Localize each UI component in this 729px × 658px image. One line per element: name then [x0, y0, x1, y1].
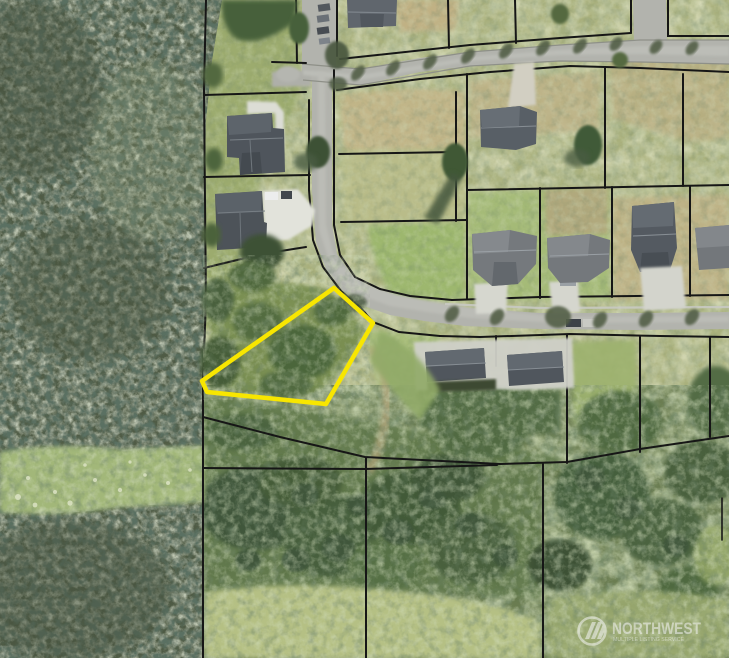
- svg-text:NORTHWEST: NORTHWEST: [612, 619, 701, 638]
- svg-text:MULTIPLE LISTING SERVICE: MULTIPLE LISTING SERVICE: [613, 637, 684, 643]
